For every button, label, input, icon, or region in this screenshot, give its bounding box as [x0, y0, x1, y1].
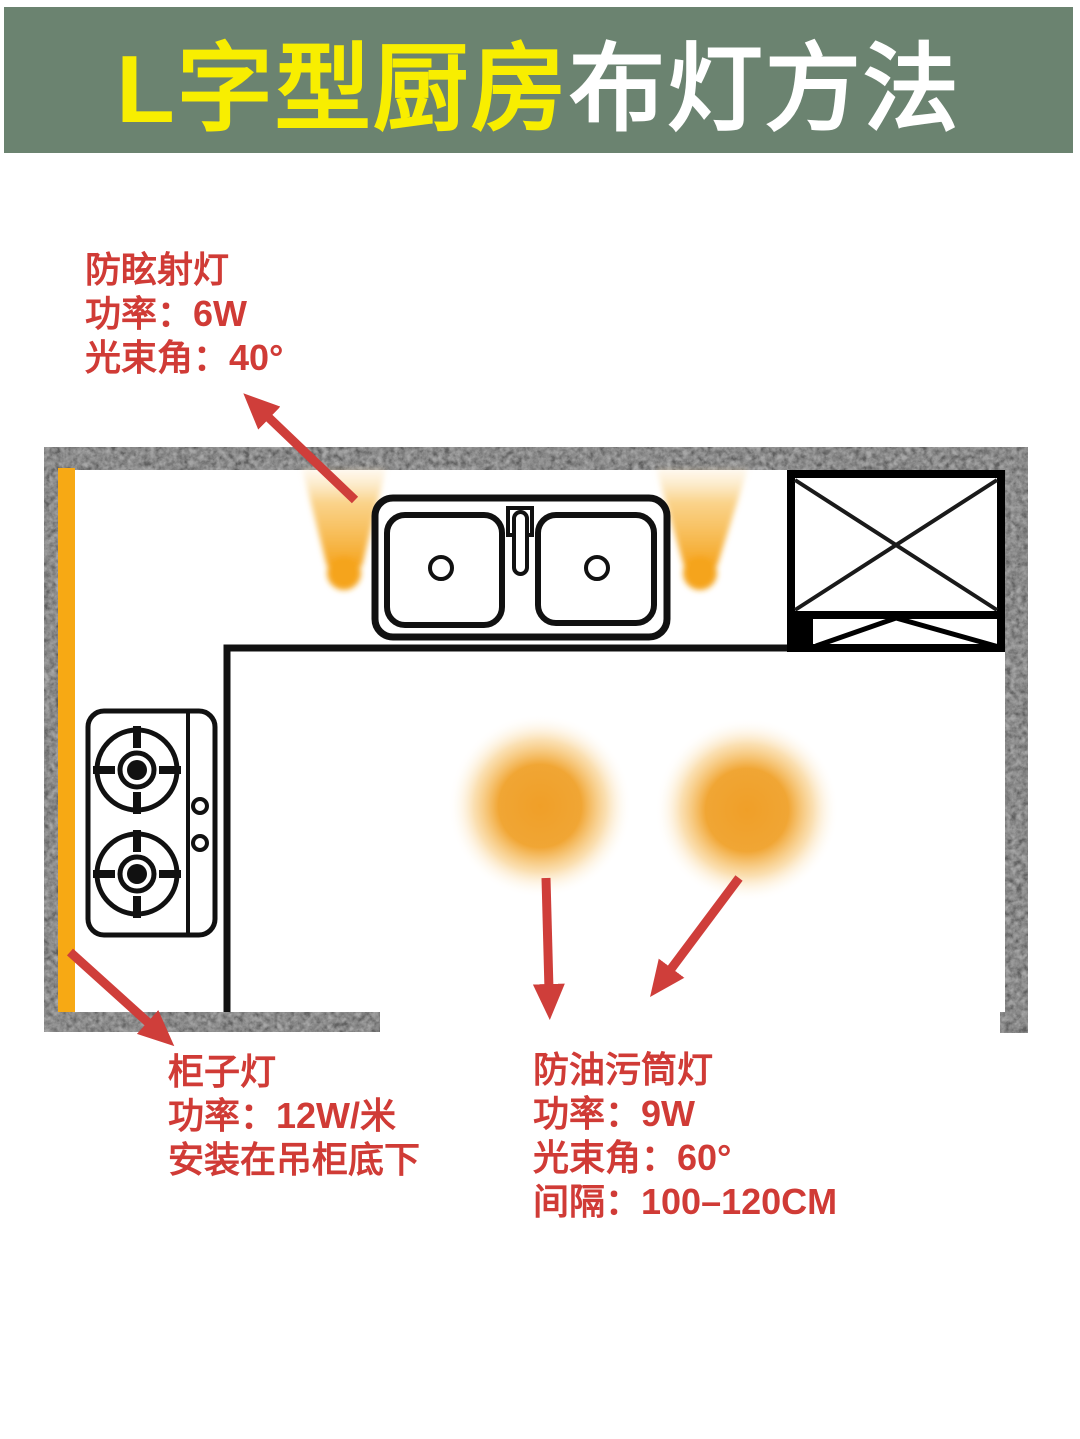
sink-drain-left [430, 557, 452, 579]
cabinet-strip-light [58, 468, 75, 1012]
gas-stove [88, 711, 215, 935]
wall-top [44, 447, 1028, 470]
wall-bottom-left [44, 1012, 380, 1032]
annotation-line: 光束角：40° [85, 336, 283, 380]
annotation-line: 防眩射灯 [85, 248, 283, 292]
arrow-to-downlight-left [546, 878, 549, 990]
annotation-line: 光束角：60° [533, 1136, 837, 1180]
annotation-line: 柜子灯 [168, 1050, 420, 1094]
sink-drain-right [586, 557, 608, 579]
arrow-to-downlight-right [668, 878, 739, 973]
wall-right-foot [1000, 1012, 1028, 1033]
annotation-downlight: 防油污筒灯 功率：9W 光束角：60° 间隔：100–120CM [533, 1048, 837, 1224]
annotation-line: 防油污筒灯 [533, 1048, 837, 1092]
annotation-line: 功率：9W [533, 1092, 837, 1136]
wall-right [1005, 447, 1028, 1013]
downlight-glow-right [655, 718, 839, 902]
annotation-line: 功率：12W/米 [168, 1094, 420, 1138]
annotation-cabinet-light: 柜子灯 功率：12W/米 安装在吊柜底下 [168, 1050, 420, 1182]
wall-left [44, 447, 58, 1032]
sink [375, 498, 667, 637]
annotation-line: 功率：6W [85, 292, 283, 336]
annotation-line: 间隔：100–120CM [533, 1180, 837, 1224]
infographic-page: L字型厨房布灯方法 [0, 0, 1080, 1439]
tall-cabinet [787, 474, 1005, 652]
annotation-line: 安装在吊柜底下 [168, 1138, 420, 1182]
annotation-spotlight: 防眩射灯 功率：6W 光束角：40° [85, 248, 283, 380]
downlight-glow-left [448, 714, 632, 898]
